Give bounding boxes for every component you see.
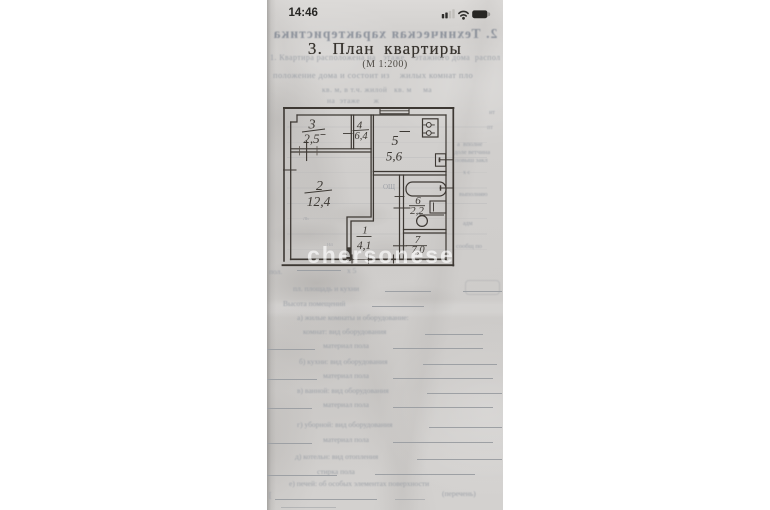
svg-text:12,4: 12,4 [307,194,331,209]
svg-text:2,2: 2,2 [410,205,424,217]
svg-text:1: 1 [362,225,368,237]
svg-text:5: 5 [392,134,399,149]
svg-text:2,5: 2,5 [303,131,320,146]
svg-text:5,6: 5,6 [386,149,403,164]
svg-text:ль: ль [303,216,309,222]
svg-text:ОЩ: ОЩ [383,183,395,191]
svg-text:6,4: 6,4 [354,131,368,142]
